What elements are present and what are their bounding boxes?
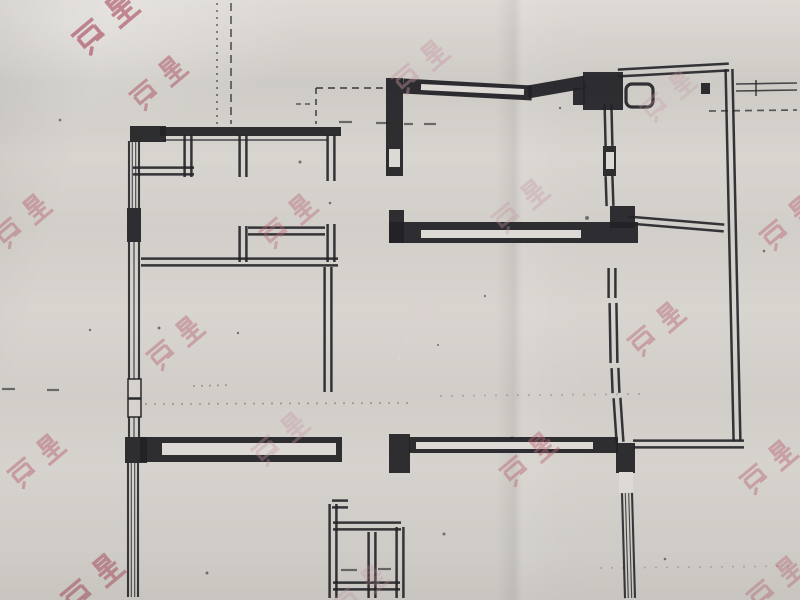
- floorplan-drawing: [0, 0, 800, 600]
- floorplan-photo: 房星: [0, 0, 800, 600]
